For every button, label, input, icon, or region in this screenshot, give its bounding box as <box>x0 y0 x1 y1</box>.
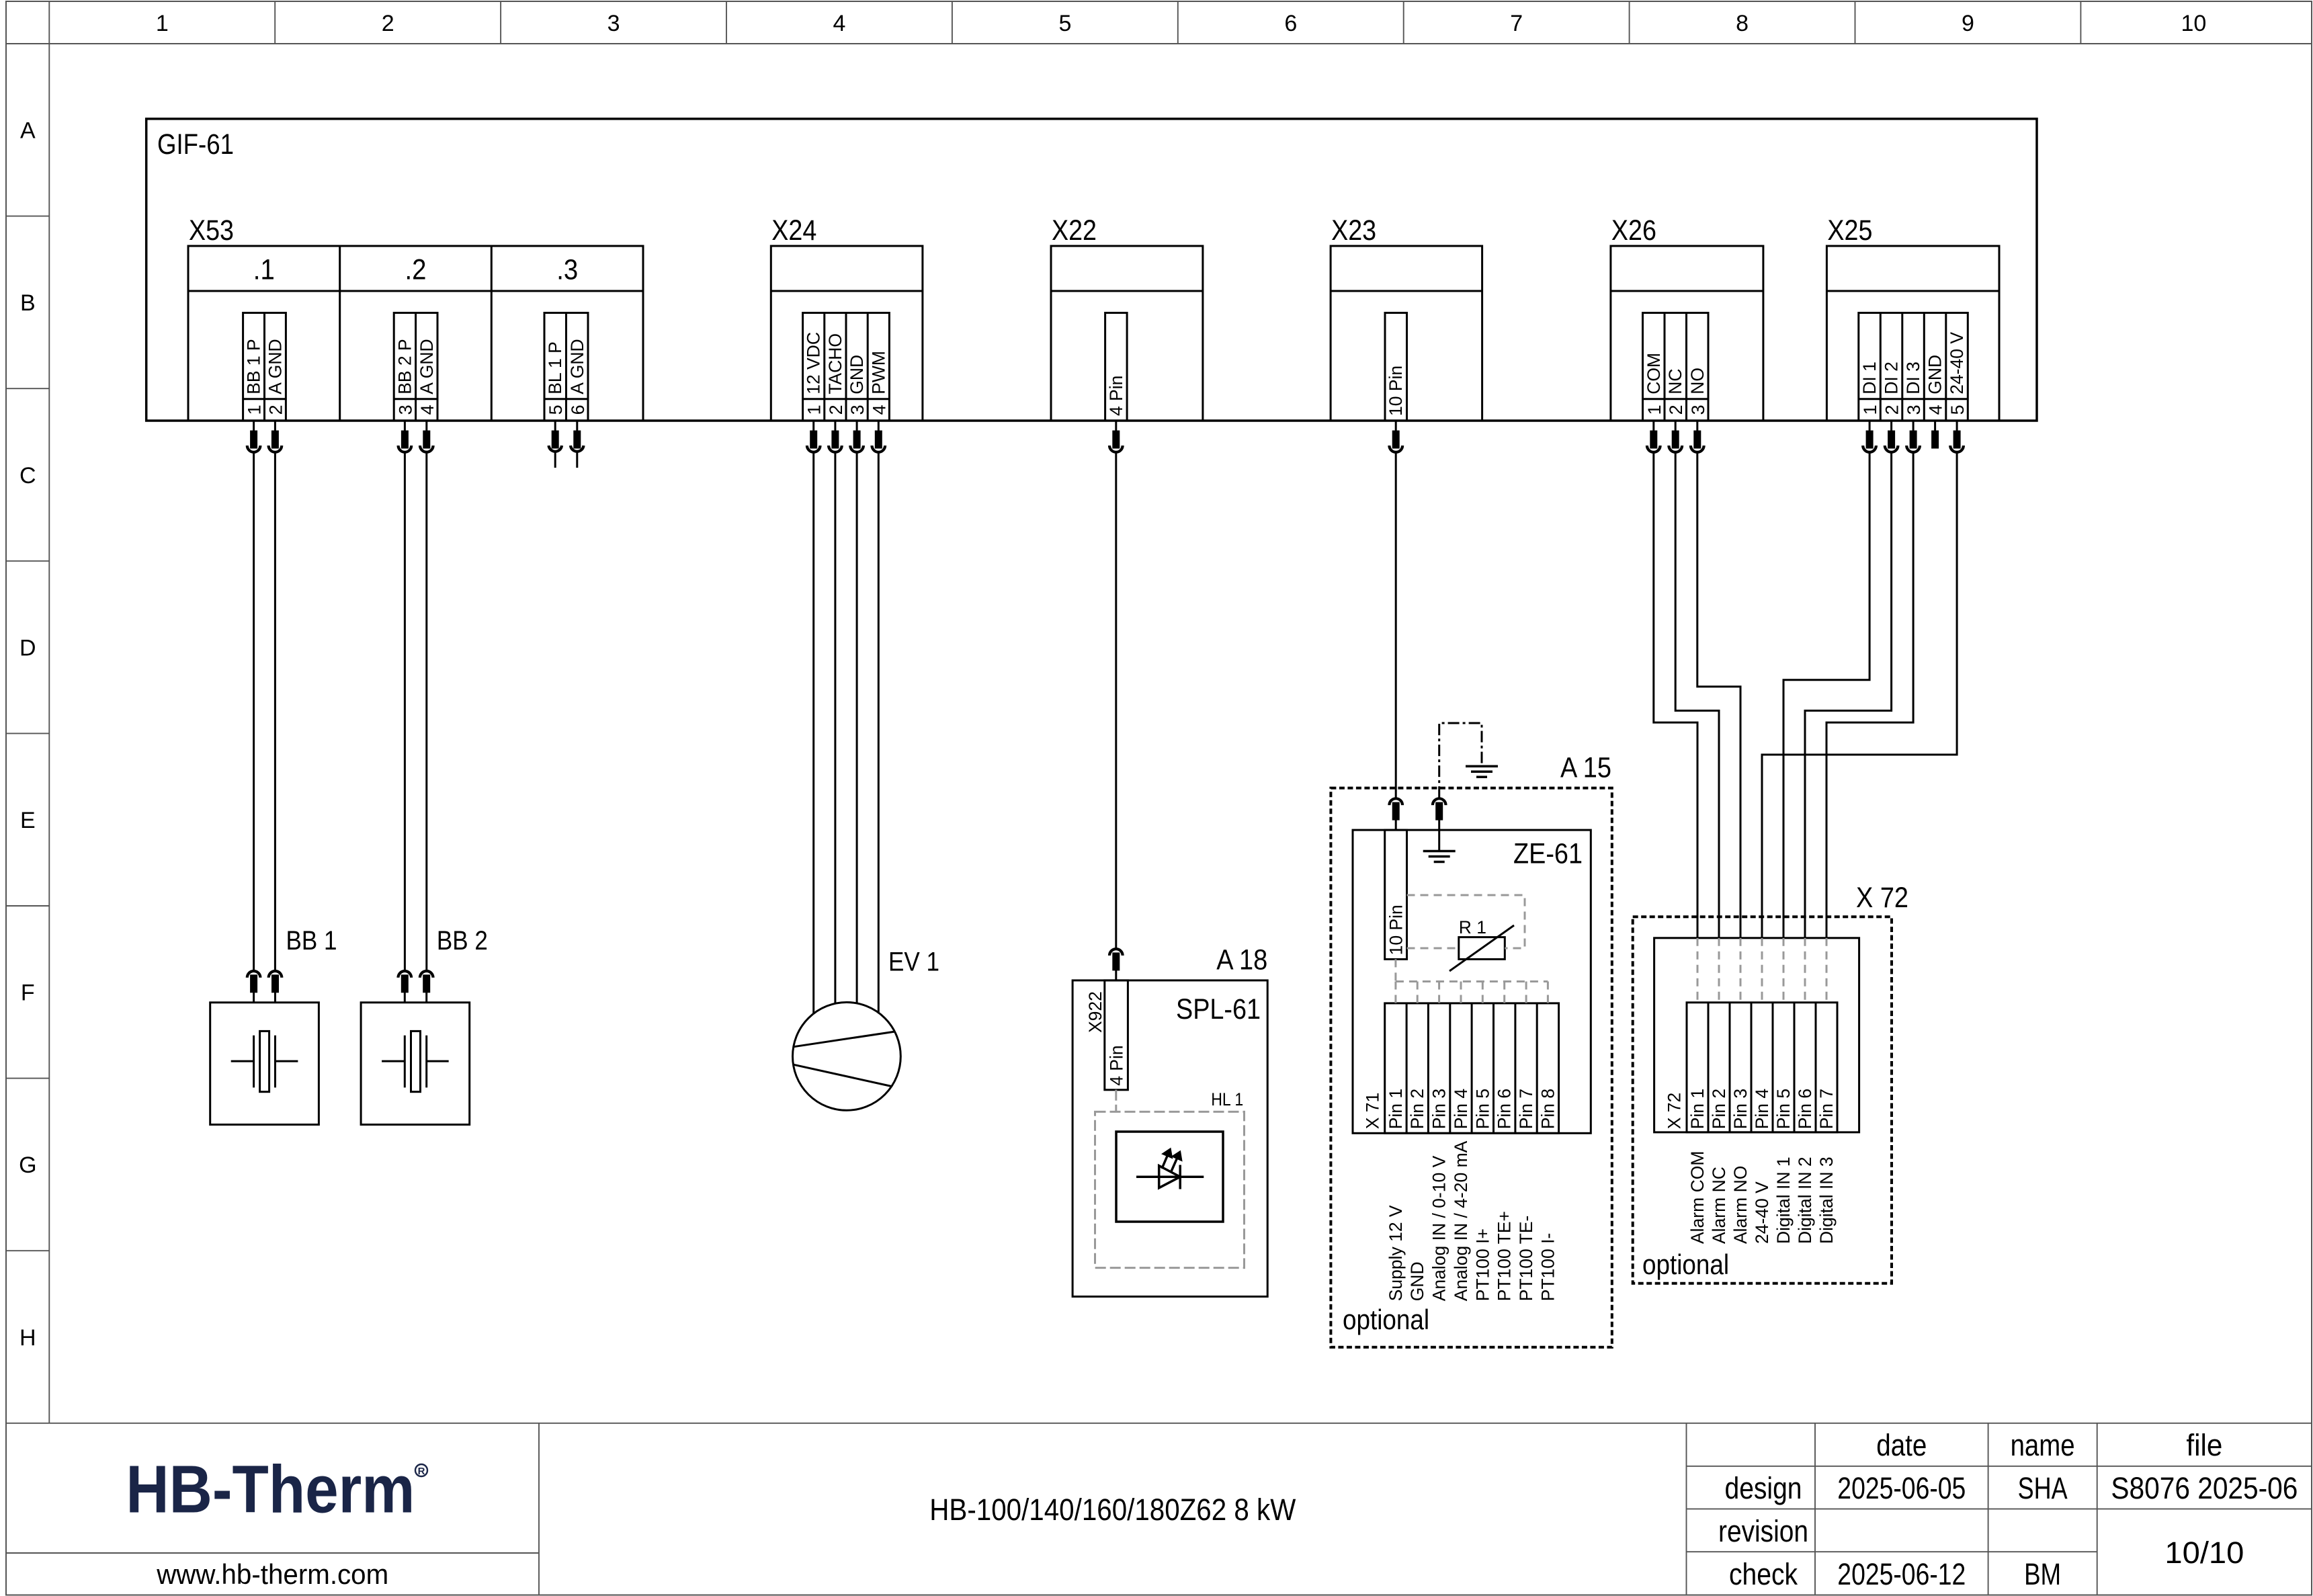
svg-text:optional: optional <box>1343 1304 1429 1335</box>
svg-text:Pin 1: Pin 1 <box>1386 1089 1406 1129</box>
svg-text:revision: revision <box>1718 1514 1808 1548</box>
svg-text:Alarm COM: Alarm COM <box>1687 1151 1708 1244</box>
svg-text:A: A <box>20 118 36 144</box>
svg-text:4: 4 <box>1926 405 1946 415</box>
svg-text:2: 2 <box>1882 405 1902 415</box>
svg-text:BL 1 P: BL 1 P <box>545 341 565 394</box>
svg-text:1: 1 <box>1860 405 1880 415</box>
svg-text:2025-06-12: 2025-06-12 <box>1837 1557 1966 1591</box>
svg-text:GND: GND <box>847 355 867 394</box>
svg-text:HB-Therm: HB-Therm <box>126 1452 415 1527</box>
svg-text:G: G <box>19 1152 36 1178</box>
svg-text:4: 4 <box>869 405 889 415</box>
svg-text:1: 1 <box>1644 405 1665 415</box>
svg-text:Pin 7: Pin 7 <box>1816 1089 1837 1129</box>
svg-text:X26: X26 <box>1611 214 1656 247</box>
svg-text:Digital IN 1: Digital IN 1 <box>1773 1157 1794 1244</box>
svg-text:A 15: A 15 <box>1560 752 1611 784</box>
svg-text:X25: X25 <box>1827 214 1872 247</box>
svg-text:SHA: SHA <box>2018 1471 2068 1505</box>
svg-text:3: 3 <box>1688 405 1708 415</box>
svg-text:24-40 V: 24-40 V <box>1947 332 1967 394</box>
svg-text:Pin 2: Pin 2 <box>1709 1089 1729 1129</box>
svg-text:Pin 8: Pin 8 <box>1538 1089 1558 1129</box>
svg-text:DI 2: DI 2 <box>1882 362 1902 394</box>
svg-text:name: name <box>2011 1428 2075 1462</box>
svg-text:PT100 TE+: PT100 TE+ <box>1495 1211 1515 1301</box>
svg-text:X 72: X 72 <box>1665 1093 1685 1130</box>
svg-text:10 Pin: 10 Pin <box>1386 366 1406 416</box>
svg-text:BB 1: BB 1 <box>286 926 337 956</box>
svg-text:BB 1 P: BB 1 P <box>244 339 264 394</box>
svg-text:GND: GND <box>1407 1261 1427 1301</box>
svg-text:R: R <box>418 1466 425 1477</box>
svg-text:1: 1 <box>156 11 169 36</box>
svg-text:6: 6 <box>568 405 588 415</box>
svg-text:Pin 4: Pin 4 <box>1752 1089 1772 1129</box>
svg-text:6: 6 <box>1284 11 1297 36</box>
svg-text:9: 9 <box>1962 11 1974 36</box>
svg-text:check: check <box>1729 1557 1798 1591</box>
svg-text:GND: GND <box>1925 355 1945 394</box>
svg-text:Digital IN 3: Digital IN 3 <box>1816 1157 1837 1244</box>
svg-text:HL 1: HL 1 <box>1211 1089 1243 1109</box>
svg-text:GIF-61: GIF-61 <box>157 128 234 161</box>
svg-text:R 1: R 1 <box>1459 917 1486 937</box>
svg-text:X22: X22 <box>1052 214 1097 247</box>
svg-text:Pin 4: Pin 4 <box>1451 1089 1471 1129</box>
svg-text:EV 1: EV 1 <box>888 948 939 977</box>
svg-text:4: 4 <box>833 11 846 36</box>
svg-text:3: 3 <box>395 405 415 415</box>
svg-text:A GND: A GND <box>265 339 285 394</box>
svg-text:5: 5 <box>1058 11 1071 36</box>
svg-text:BB 2: BB 2 <box>437 926 488 956</box>
svg-text:D: D <box>19 635 36 661</box>
svg-text:design: design <box>1725 1471 1802 1505</box>
svg-text:H: H <box>19 1325 36 1351</box>
svg-text:BB 2 P: BB 2 P <box>394 339 415 394</box>
svg-text:C: C <box>19 463 36 489</box>
svg-text:Pin 6: Pin 6 <box>1795 1089 1815 1129</box>
svg-text:2: 2 <box>1666 405 1686 415</box>
svg-text:Pin 7: Pin 7 <box>1516 1089 1536 1129</box>
svg-text:www.hb-therm.com: www.hb-therm.com <box>156 1558 388 1590</box>
svg-text:A GND: A GND <box>567 339 587 394</box>
svg-text:Pin 5: Pin 5 <box>1773 1089 1794 1129</box>
svg-text:3: 3 <box>847 405 868 415</box>
svg-text:3: 3 <box>607 11 620 36</box>
svg-text:BM: BM <box>2024 1557 2061 1591</box>
svg-text:Digital IN 2: Digital IN 2 <box>1795 1157 1815 1244</box>
svg-text:X23: X23 <box>1331 214 1376 247</box>
svg-text:PT100 I-: PT100 I- <box>1538 1233 1558 1302</box>
svg-text:S8076 2025-06: S8076 2025-06 <box>2111 1471 2298 1505</box>
svg-text:5: 5 <box>1947 405 1968 415</box>
svg-text:8: 8 <box>1736 11 1749 36</box>
svg-text:X 71: X 71 <box>1363 1093 1383 1130</box>
svg-text:Pin 3: Pin 3 <box>1730 1089 1751 1129</box>
svg-text:.2: .2 <box>405 254 427 286</box>
svg-text:.1: .1 <box>253 254 275 286</box>
svg-text:24-40 V: 24-40 V <box>1752 1181 1772 1244</box>
svg-text:Supply 12 V: Supply 12 V <box>1386 1205 1406 1301</box>
svg-text:2025-06-05: 2025-06-05 <box>1837 1471 1966 1505</box>
svg-text:file: file <box>2186 1428 2222 1462</box>
svg-text:PT100 I+: PT100 I+ <box>1472 1228 1492 1301</box>
svg-text:ZE-61: ZE-61 <box>1513 838 1583 870</box>
svg-text:F: F <box>21 980 35 1006</box>
svg-text:2: 2 <box>382 11 394 36</box>
svg-text:HB-100/140/160/180Z62 8 kW: HB-100/140/160/180Z62 8 kW <box>929 1493 1296 1527</box>
svg-text:NO: NO <box>1687 368 1708 394</box>
svg-text:Analog IN / 0-10 V: Analog IN / 0-10 V <box>1429 1155 1449 1301</box>
svg-text:A 18: A 18 <box>1216 944 1267 976</box>
svg-text:Pin 1: Pin 1 <box>1687 1089 1708 1129</box>
svg-text:1: 1 <box>804 405 825 415</box>
svg-text:TACHO: TACHO <box>825 333 845 394</box>
svg-text:5: 5 <box>546 405 566 415</box>
svg-text:.3: .3 <box>556 254 578 286</box>
svg-text:PWM: PWM <box>868 351 888 394</box>
svg-text:2: 2 <box>826 405 846 415</box>
svg-text:X53: X53 <box>189 214 234 247</box>
svg-text:3: 3 <box>1904 405 1924 415</box>
svg-text:A GND: A GND <box>417 339 437 394</box>
svg-text:X 72: X 72 <box>1856 882 1908 914</box>
svg-text:10: 10 <box>2181 11 2206 36</box>
svg-text:Alarm NC: Alarm NC <box>1709 1167 1729 1244</box>
svg-text:2: 2 <box>265 405 286 415</box>
svg-text:7: 7 <box>1510 11 1523 36</box>
svg-text:DI 1: DI 1 <box>1859 362 1880 394</box>
svg-text:B: B <box>20 290 36 316</box>
svg-text:X24: X24 <box>771 214 816 247</box>
svg-text:PT100 TE-: PT100 TE- <box>1516 1216 1536 1302</box>
svg-text:NC: NC <box>1665 369 1685 394</box>
svg-text:X922: X922 <box>1085 991 1105 1033</box>
svg-text:10 Pin: 10 Pin <box>1386 905 1406 955</box>
svg-text:DI 3: DI 3 <box>1903 362 1923 394</box>
svg-text:Pin 3: Pin 3 <box>1429 1089 1449 1129</box>
svg-text:4 Pin: 4 Pin <box>1107 1045 1127 1085</box>
svg-text:4 Pin: 4 Pin <box>1106 376 1126 416</box>
svg-text:date: date <box>1876 1428 1927 1462</box>
svg-text:Pin 2: Pin 2 <box>1407 1089 1427 1129</box>
svg-text:12 VDC: 12 VDC <box>804 332 824 394</box>
svg-text:Alarm NO: Alarm NO <box>1730 1166 1751 1244</box>
svg-text:E: E <box>20 808 36 833</box>
svg-text:COM: COM <box>1644 353 1664 394</box>
svg-text:10/10: 10/10 <box>2164 1536 2244 1570</box>
svg-text:SPL-61: SPL-61 <box>1176 993 1261 1025</box>
svg-text:optional: optional <box>1642 1249 1729 1280</box>
svg-text:Pin 5: Pin 5 <box>1472 1089 1492 1129</box>
svg-text:1: 1 <box>245 405 265 415</box>
svg-text:Pin 6: Pin 6 <box>1495 1089 1515 1129</box>
svg-text:4: 4 <box>417 405 437 415</box>
svg-text:Analog IN / 4-20 mA: Analog IN / 4-20 mA <box>1451 1140 1471 1301</box>
